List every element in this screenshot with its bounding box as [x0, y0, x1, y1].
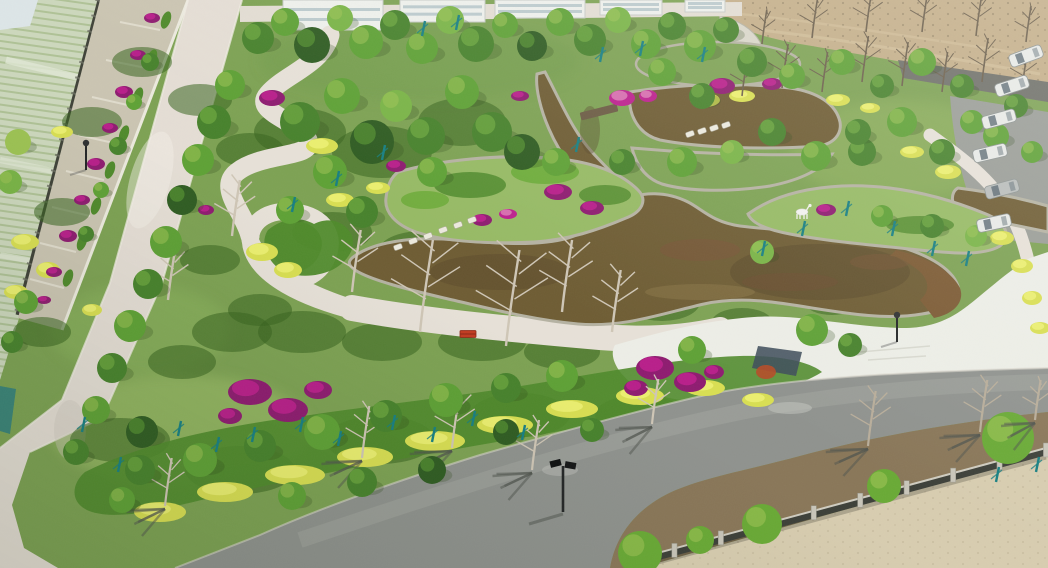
- scene-svg: [0, 0, 1048, 568]
- aerial-park-photo: [0, 0, 1048, 568]
- grain-overlay: [0, 0, 1048, 568]
